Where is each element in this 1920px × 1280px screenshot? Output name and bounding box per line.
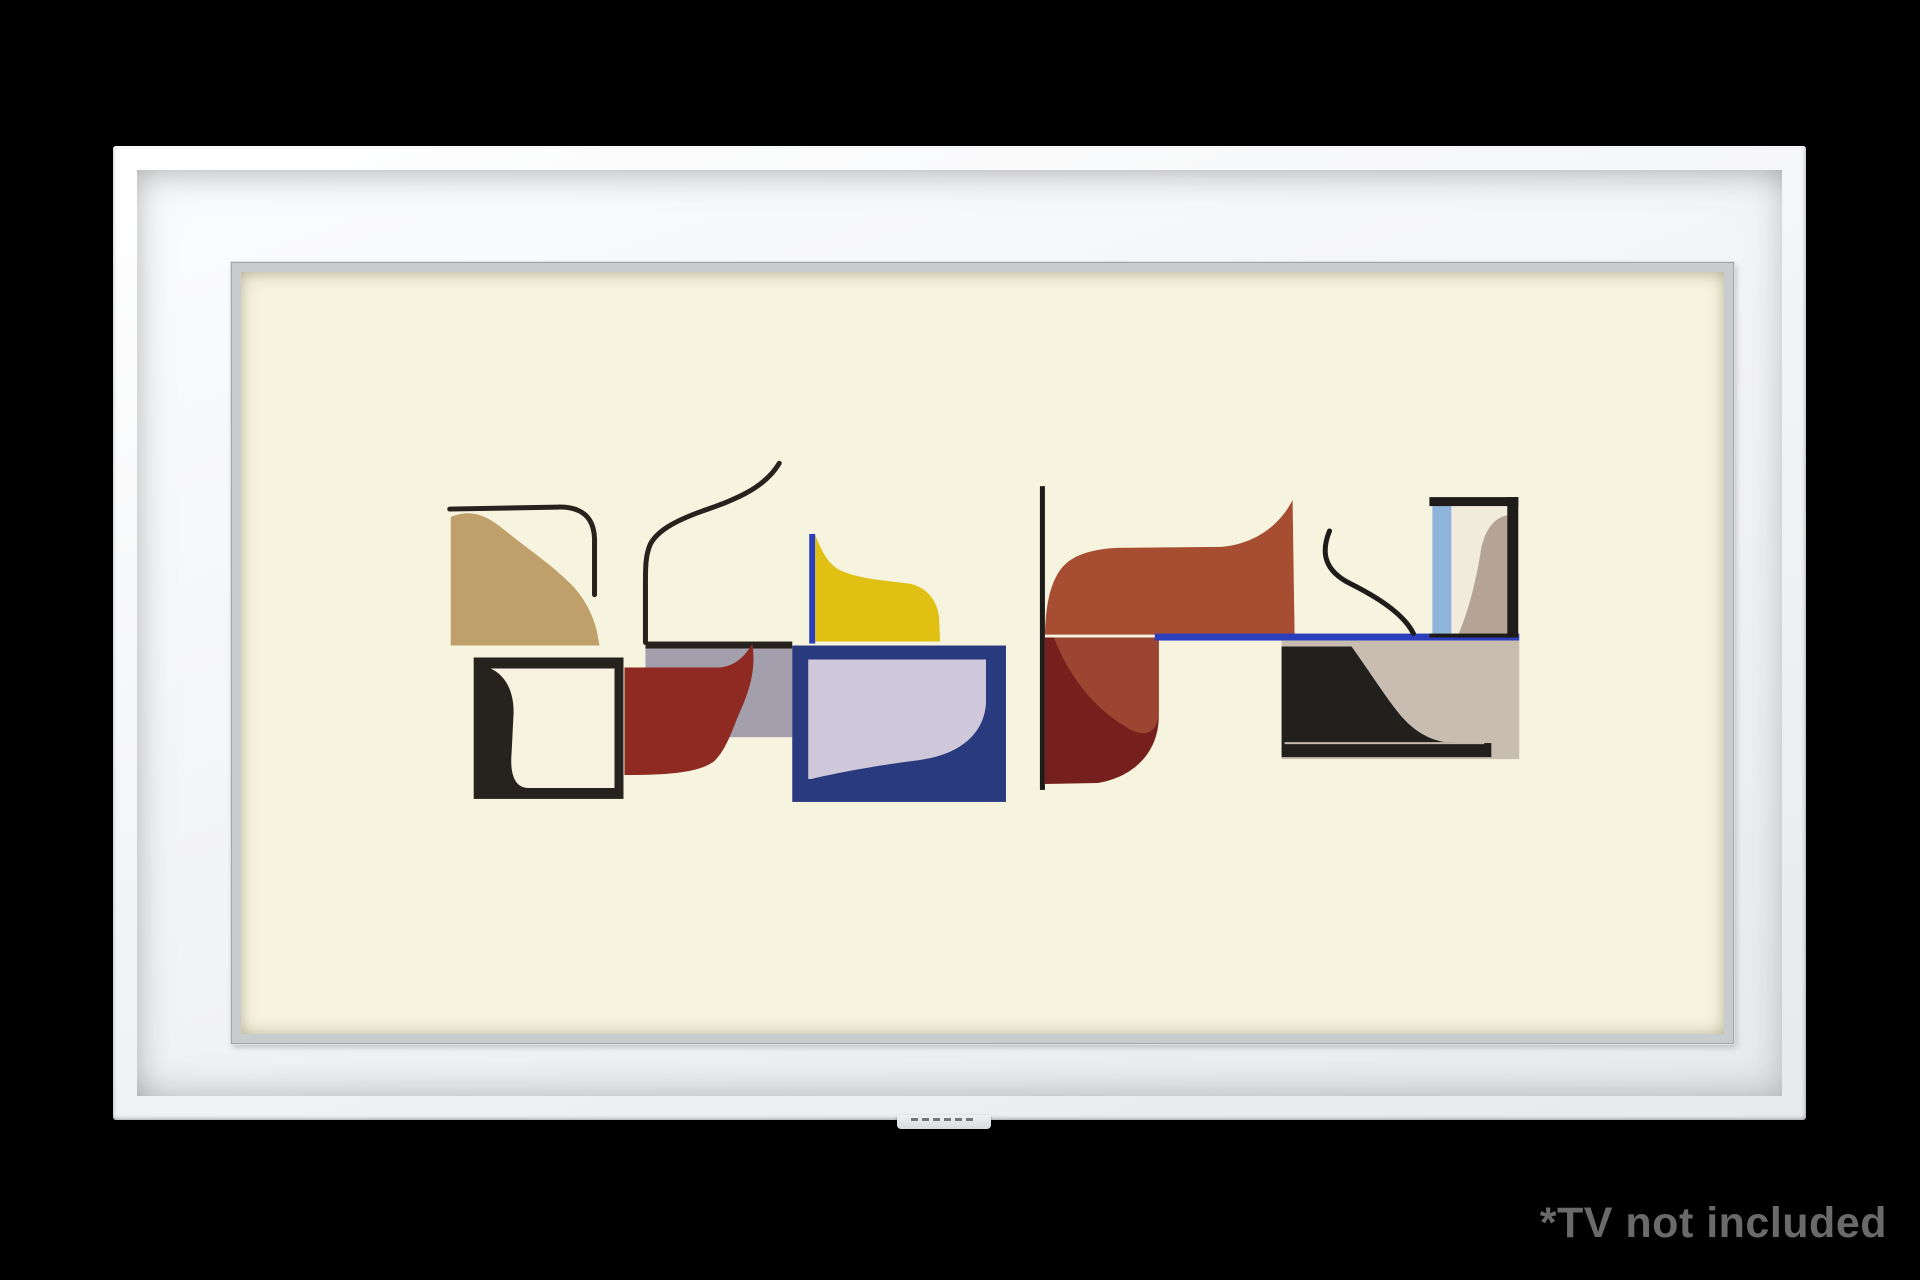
yellow-left-blue-line	[809, 534, 815, 644]
left-s-curve-line	[645, 463, 779, 642]
artwork-svg	[241, 272, 1724, 1034]
tan-wave-square	[451, 513, 600, 645]
black-wave-scratch-line	[1285, 742, 1485, 744]
right-frame-blue-stripe	[1432, 505, 1451, 634]
right-s-curve-line	[1325, 531, 1413, 634]
rust-wave-shape	[1045, 500, 1295, 634]
center-vertical-line	[1040, 486, 1045, 790]
scene: *TV not included	[0, 0, 1920, 1280]
right-frame-top-bar	[1429, 497, 1518, 506]
tv-not-included-disclaimer: *TV not included	[1540, 1199, 1887, 1248]
art-canvas	[241, 272, 1724, 1034]
right-frame-right-bar	[1507, 497, 1518, 637]
frame-tab-ports	[911, 1118, 977, 1121]
gray-strip-top-line	[645, 642, 792, 649]
frame-bottom-tab	[897, 1115, 991, 1129]
right-frame-bottom-line	[1429, 634, 1509, 638]
picture-frame	[113, 146, 1806, 1120]
frame-mat	[137, 170, 1782, 1096]
yellow-wave-shape	[815, 535, 940, 642]
frame-opening-bevel	[231, 262, 1734, 1044]
